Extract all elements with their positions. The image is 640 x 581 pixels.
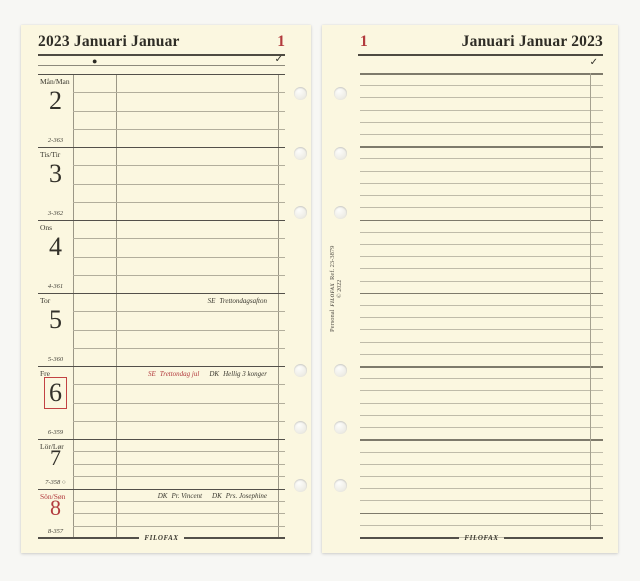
note-rule-line <box>360 390 603 391</box>
day-number: 3 <box>49 159 62 188</box>
day-of-year-code: 3-362 <box>38 210 73 217</box>
day-rule-line <box>73 384 285 385</box>
holiday-notes: SETrettondagsafton <box>198 297 267 305</box>
day-date: 6 <box>38 380 73 406</box>
note-rule-line <box>360 207 603 208</box>
left-title-rule <box>38 54 285 56</box>
diary-left-page: 2023 Januari Januar 1 ● ✓ Mån/Man22-363T… <box>21 25 311 553</box>
day-block: Tor55-360SETrettondagsafton <box>38 293 285 366</box>
note-rule-line <box>360 134 603 135</box>
note-rule-line <box>360 378 603 379</box>
punch-hole <box>334 147 347 160</box>
spine-imprint: PersonalfilofaxRef. 23-3879 © 2022 <box>327 209 345 369</box>
note-rule-line <box>360 403 603 404</box>
check-mark-icon: ✓ <box>590 58 598 68</box>
spine-copyright: © 2022 <box>337 209 345 369</box>
day-rule-line <box>73 184 285 185</box>
day-rule-line <box>73 501 285 502</box>
holiday-note: SETrettondagsafton <box>208 297 267 305</box>
day-rule-line <box>73 238 285 239</box>
note-rule-line <box>360 268 603 269</box>
punch-hole <box>334 87 347 100</box>
day-rule-line <box>73 464 285 465</box>
day-rule-line <box>73 165 285 166</box>
right-check-column-line <box>590 73 591 530</box>
note-rule-line <box>360 525 603 526</box>
day-of-year-code: 7-358 ○ <box>38 479 73 486</box>
note-rule-line <box>360 244 603 245</box>
day-rule-line <box>73 92 285 93</box>
holiday-notes: DKPr. VincentDKPrs. Josephine <box>148 492 267 500</box>
right-title-rule <box>358 54 603 56</box>
punch-hole <box>334 206 347 219</box>
notes-right-page: 1 Januari Januar 2023 ✓ PersonalfilofaxR… <box>322 25 618 553</box>
day-rule-line <box>73 526 285 527</box>
day-date: 8 <box>38 497 73 519</box>
day-rule-line <box>73 129 285 130</box>
note-rule-line <box>360 97 603 98</box>
note-rule-line <box>360 293 603 295</box>
punch-hole <box>334 364 347 377</box>
day-block: Tis/Tir33-362 <box>38 147 285 220</box>
day-rule-line <box>73 311 285 312</box>
day-block: Ons44-361 <box>38 220 285 293</box>
day-block: Fre66-359SETrettondag julDKHellig 3 kong… <box>38 366 285 439</box>
note-rule-line <box>360 158 603 159</box>
day-date: 3 <box>38 161 73 187</box>
day-label: Tor <box>40 296 50 305</box>
punch-hole <box>334 421 347 434</box>
punch-hole <box>334 479 347 492</box>
note-rule-line <box>360 513 603 515</box>
left-page-footer: filofax <box>38 531 285 545</box>
day-of-year-code: 2-363 <box>38 137 73 144</box>
filofax-logo: filofax <box>144 533 178 543</box>
punch-hole <box>294 147 307 160</box>
punch-hole <box>294 421 307 434</box>
note-rule-line <box>360 476 603 477</box>
day-of-year-code: 4-361 <box>38 283 73 290</box>
holiday-notes: SETrettondag julDKHellig 3 konger <box>138 370 267 378</box>
note-rule-line <box>360 256 603 257</box>
spine-ref-line: PersonalfilofaxRef. 23-3879 <box>327 209 337 369</box>
day-label: Ons <box>40 223 52 232</box>
day-label: Tis/Tir <box>40 150 60 159</box>
note-rule-line <box>360 183 603 184</box>
note-rule-line <box>360 85 603 86</box>
footer-rule <box>38 537 139 539</box>
footer-rule <box>184 537 285 539</box>
note-rule-line <box>360 110 603 111</box>
day-of-year-code: 6-359 <box>38 429 73 436</box>
note-rule-line <box>360 464 603 465</box>
note-rule-line <box>360 122 603 123</box>
day-rule-line <box>73 348 285 349</box>
day-rule-line <box>73 330 285 331</box>
day-date: 5 <box>38 307 73 333</box>
note-rule-line <box>360 427 603 428</box>
day-number: 7 <box>50 445 61 470</box>
filofax-logo: filofax <box>464 533 498 543</box>
day-of-year-code: 5-360 <box>38 356 73 363</box>
day-date: 7 <box>38 447 73 469</box>
footer-rule <box>360 537 459 539</box>
note-rule-line <box>360 73 603 75</box>
day-rule-line <box>73 275 285 276</box>
note-rule-line <box>360 220 603 222</box>
left-subheader-rule <box>38 65 285 66</box>
note-rule-line <box>360 195 603 196</box>
holiday-note: DKPr. Vincent <box>158 492 202 500</box>
punch-hole <box>294 206 307 219</box>
day-rule-line <box>73 451 285 452</box>
punch-hole <box>294 364 307 377</box>
punch-hole <box>294 87 307 100</box>
left-week-number: 1 <box>277 33 285 51</box>
day-number: 4 <box>49 232 62 261</box>
day-number: 2 <box>49 86 62 115</box>
day-rule-line <box>73 257 285 258</box>
note-rule-line <box>360 500 603 501</box>
day-rule-line <box>73 202 285 203</box>
day-rule-line <box>73 476 285 477</box>
day-number: 5 <box>49 305 62 334</box>
day-rule-line <box>73 403 285 404</box>
note-rule-line <box>360 329 603 330</box>
note-rule-line <box>360 342 603 343</box>
note-rule-line <box>360 232 603 233</box>
day-rule-line <box>73 513 285 514</box>
day-date: 4 <box>38 234 73 260</box>
check-mark-icon: ✓ <box>275 55 283 65</box>
right-page-title: Januari Januar 2023 <box>462 33 603 51</box>
filofax-logo-small: filofax <box>327 283 336 307</box>
note-rule-line <box>360 281 603 282</box>
note-rule-line <box>360 317 603 318</box>
holiday-note: DKPrs. Josephine <box>212 492 267 500</box>
left-page-title: 2023 Januari Januar <box>38 33 180 51</box>
day-rule-line <box>73 421 285 422</box>
note-rule-line <box>360 366 603 368</box>
day-label: Mån/Man <box>40 77 70 86</box>
note-rule-line <box>360 146 603 148</box>
punch-hole <box>294 479 307 492</box>
holiday-note: SETrettondag jul <box>148 370 199 378</box>
day-number: 6 <box>44 377 67 409</box>
spine-size-label: Personal <box>329 310 336 332</box>
footer-rule <box>504 537 603 539</box>
note-rule-line <box>360 439 603 441</box>
note-rule-line <box>360 305 603 306</box>
day-date: 2 <box>38 88 73 114</box>
holiday-note: DKHellig 3 konger <box>209 370 267 378</box>
note-rule-line <box>360 415 603 416</box>
day-block: Mån/Man22-363 <box>38 74 285 147</box>
right-week-number: 1 <box>360 33 368 51</box>
day-block: Lör/Lør77-358 ○ <box>38 439 285 489</box>
spine-ref-number: Ref. 23-3879 <box>329 246 336 280</box>
note-rule-line <box>360 171 603 172</box>
day-number: 8 <box>50 495 61 520</box>
note-rule-line <box>360 452 603 453</box>
day-rule-line <box>73 111 285 112</box>
right-page-footer: filofax <box>360 531 603 545</box>
note-rule-line <box>360 488 603 489</box>
note-rule-line <box>360 354 603 355</box>
